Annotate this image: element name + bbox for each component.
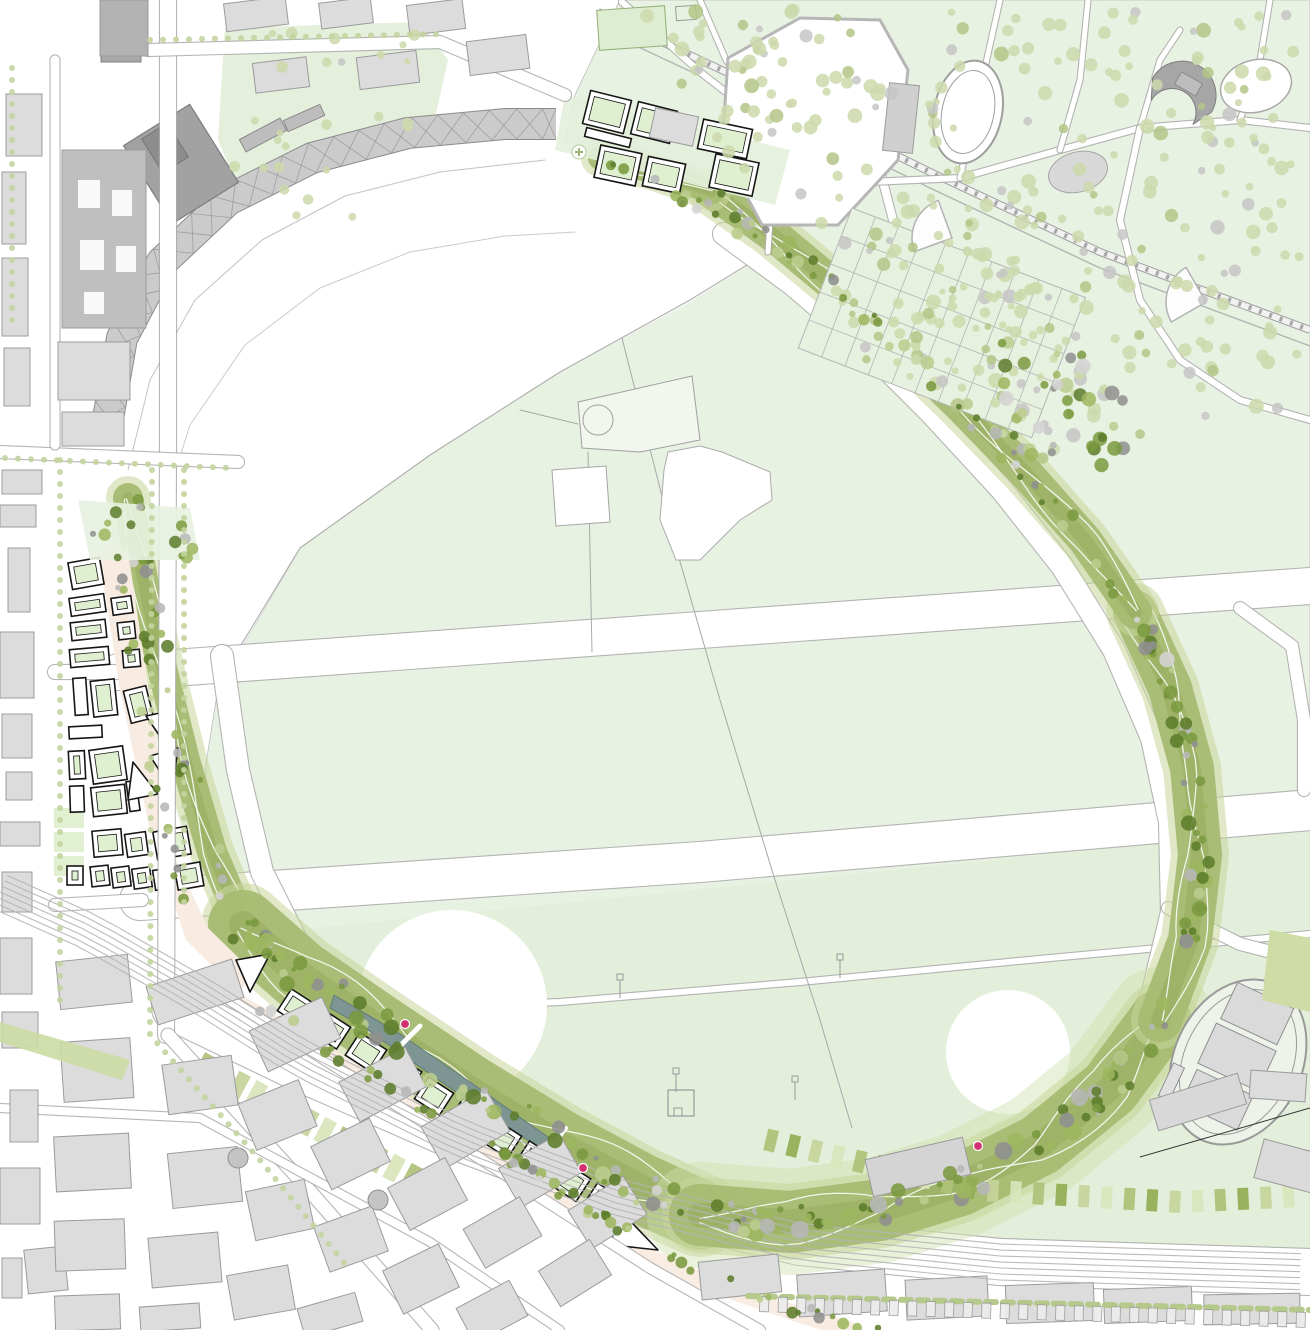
city-road-west-horizontal bbox=[0, 452, 238, 462]
site-plan-map bbox=[0, 0, 1310, 1330]
sports-field-top bbox=[597, 6, 668, 51]
church-1 bbox=[228, 1148, 248, 1168]
poi-marker-3 bbox=[974, 1142, 983, 1151]
poi-marker-2 bbox=[579, 1164, 588, 1173]
green-sliver-east-edge bbox=[1262, 930, 1310, 1012]
info-plus-icon bbox=[572, 145, 586, 159]
site-plan-stage bbox=[0, 0, 1310, 1330]
field-white-cut bbox=[552, 466, 610, 526]
church-2 bbox=[368, 1190, 388, 1210]
poi-marker-1 bbox=[401, 1020, 410, 1029]
